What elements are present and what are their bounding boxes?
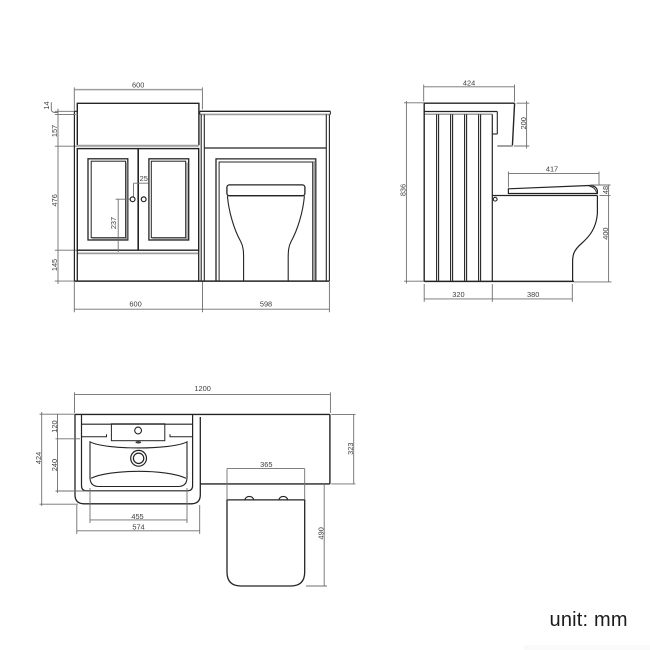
svg-text:1200: 1200 [194, 384, 210, 393]
svg-text:unit: mm: unit: mm [550, 609, 628, 631]
svg-text:240: 240 [50, 459, 59, 471]
svg-text:25: 25 [140, 174, 148, 183]
svg-text:365: 365 [260, 460, 272, 469]
svg-text:48: 48 [601, 186, 610, 194]
svg-text:476: 476 [50, 194, 59, 206]
svg-text:400: 400 [601, 227, 610, 239]
svg-text:417: 417 [546, 164, 558, 173]
svg-text:323: 323 [346, 443, 355, 455]
svg-text:598: 598 [260, 299, 272, 308]
svg-text:490: 490 [317, 527, 326, 539]
svg-text:120: 120 [50, 420, 59, 432]
svg-text:836: 836 [399, 184, 408, 196]
svg-text:600: 600 [132, 81, 144, 90]
svg-text:157: 157 [50, 125, 59, 137]
svg-text:320: 320 [452, 290, 464, 299]
svg-text:455: 455 [131, 512, 143, 521]
svg-text:200: 200 [519, 117, 528, 129]
svg-text:424: 424 [34, 452, 43, 464]
svg-text:380: 380 [527, 290, 539, 299]
svg-text:600: 600 [129, 299, 141, 308]
svg-text:574: 574 [132, 523, 144, 532]
svg-text:145: 145 [50, 259, 59, 271]
svg-text:14: 14 [42, 101, 51, 109]
svg-text:424: 424 [463, 78, 475, 87]
svg-text:237: 237 [109, 217, 118, 229]
